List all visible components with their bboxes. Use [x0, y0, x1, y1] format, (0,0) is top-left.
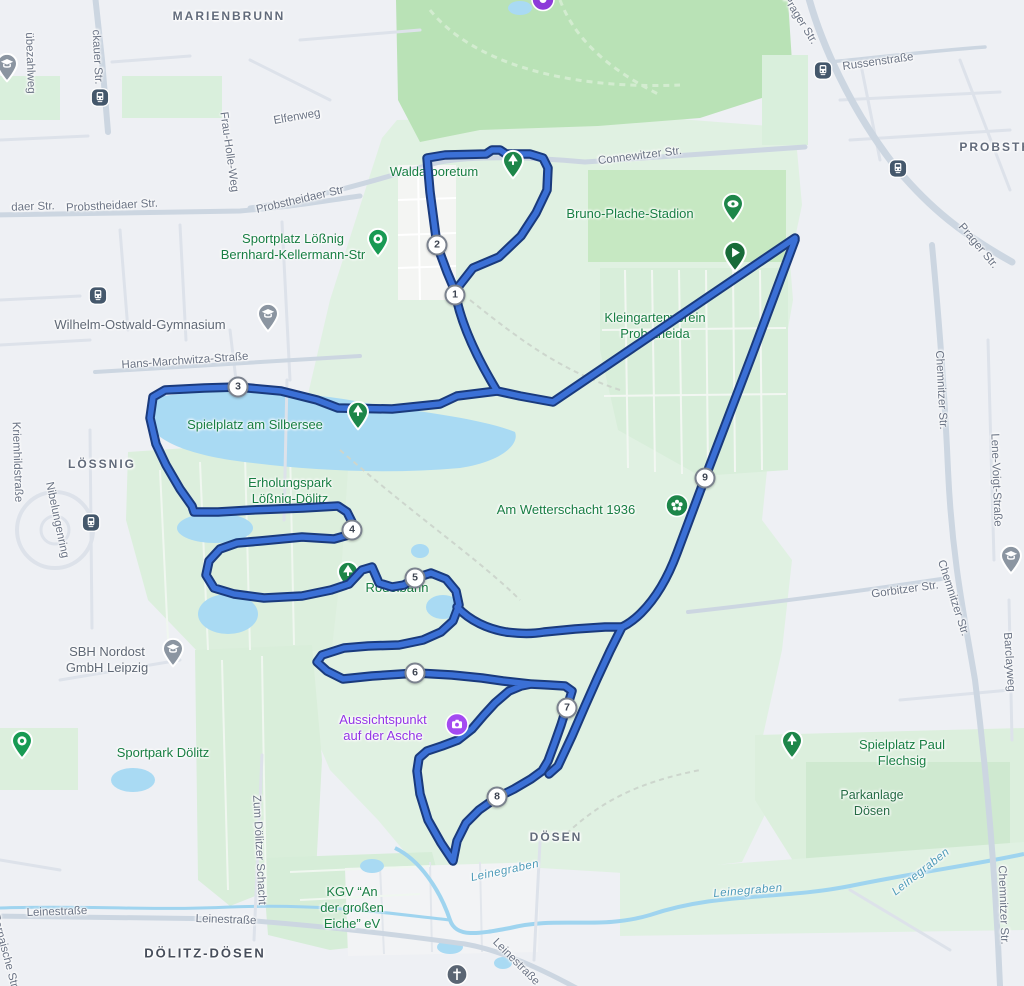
km-marker-5: 5	[405, 568, 426, 589]
km-marker-7: 7	[557, 698, 578, 719]
km-marker-1: 1	[445, 285, 466, 306]
route-start-pin-icon[interactable]	[721, 240, 749, 277]
km-marker-3: 3	[228, 377, 249, 398]
km-marker-8: 8	[487, 787, 508, 808]
km-marker-2: 2	[427, 235, 448, 256]
map-canvas[interactable]: Rodelbahn MARIENBRUNNPROBSTHEIDALÖSSNIGD…	[0, 0, 1024, 986]
km-marker-4: 4	[342, 520, 363, 541]
km-marker-9: 9	[695, 468, 716, 489]
km-marker-6: 6	[405, 663, 426, 684]
